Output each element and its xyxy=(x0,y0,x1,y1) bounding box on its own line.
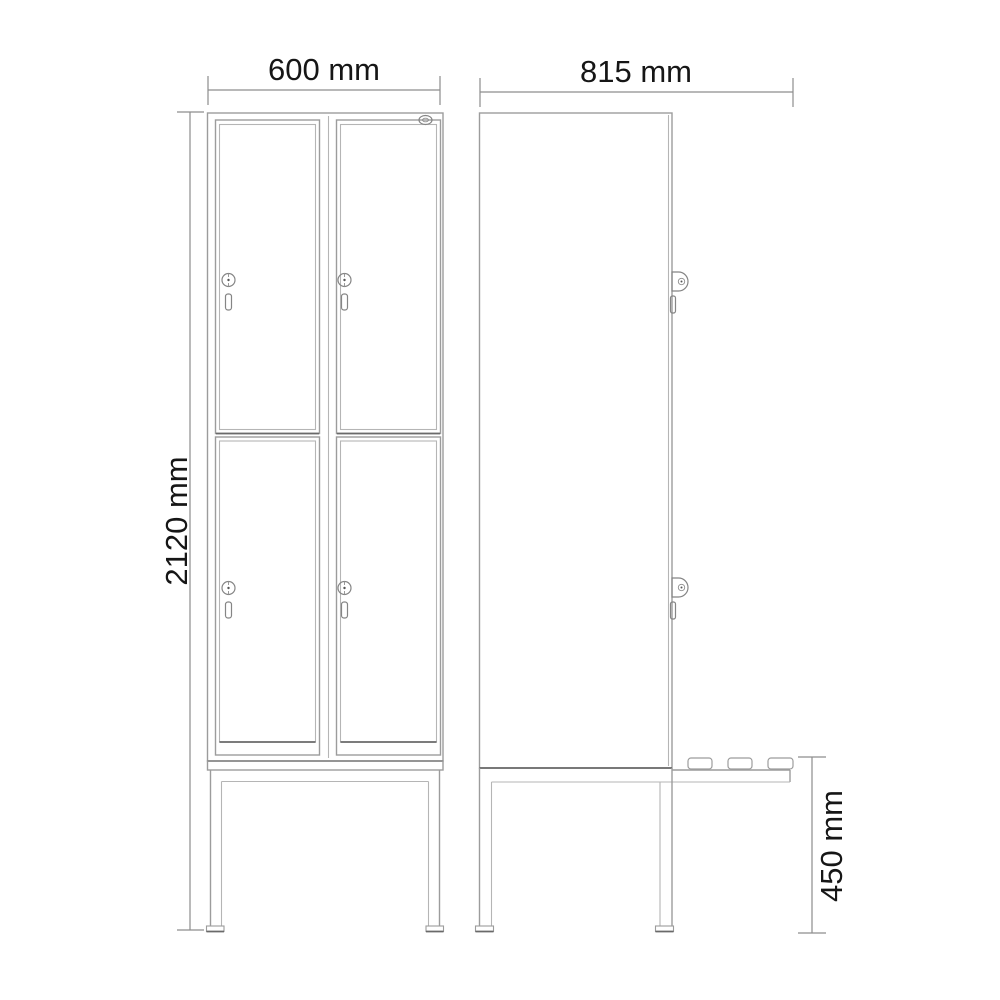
door-lower-right xyxy=(337,437,441,755)
bench-height-label: 450 mm xyxy=(814,790,849,902)
front-view: 600 mm 2120 mm xyxy=(159,52,444,932)
bench-slat xyxy=(768,758,793,769)
front-width-dimension: 600 mm xyxy=(208,52,440,105)
front-height-dimension: 2120 mm xyxy=(159,112,204,930)
door-lower-left xyxy=(216,437,320,755)
cylinder-lock-icon xyxy=(672,272,688,291)
front-bench-stand xyxy=(207,761,444,932)
door-handle-icon xyxy=(342,294,348,310)
cylinder-lock-icon xyxy=(672,578,688,597)
front-height-label: 2120 mm xyxy=(159,456,194,585)
side-depth-label: 815 mm xyxy=(580,54,692,89)
side-lock-lower xyxy=(671,578,689,619)
door-handle-icon xyxy=(226,602,232,618)
door-handle-icon xyxy=(226,294,232,310)
bench-height-dimension: 450 mm xyxy=(798,757,849,933)
door-upper-right xyxy=(337,120,441,434)
side-lock-upper xyxy=(671,272,689,313)
side-cabinet-body xyxy=(480,113,673,768)
door-handle-icon xyxy=(671,296,676,313)
lock-upper-left xyxy=(222,274,235,311)
door-upper-left xyxy=(216,120,320,434)
door-handle-icon xyxy=(342,602,348,618)
side-bench-stand xyxy=(476,758,794,932)
side-view: 815 mm xyxy=(476,54,850,933)
side-depth-dimension: 815 mm xyxy=(480,54,793,107)
bench-slat xyxy=(728,758,752,769)
locker-technical-drawing: 600 mm 2120 mm xyxy=(0,0,1000,1000)
door-handle-icon xyxy=(671,602,676,619)
bench-slat xyxy=(688,758,712,769)
front-width-label: 600 mm xyxy=(268,52,380,87)
lock-lower-left xyxy=(222,582,235,619)
drawing-canvas: 600 mm 2120 mm xyxy=(0,0,1000,1000)
